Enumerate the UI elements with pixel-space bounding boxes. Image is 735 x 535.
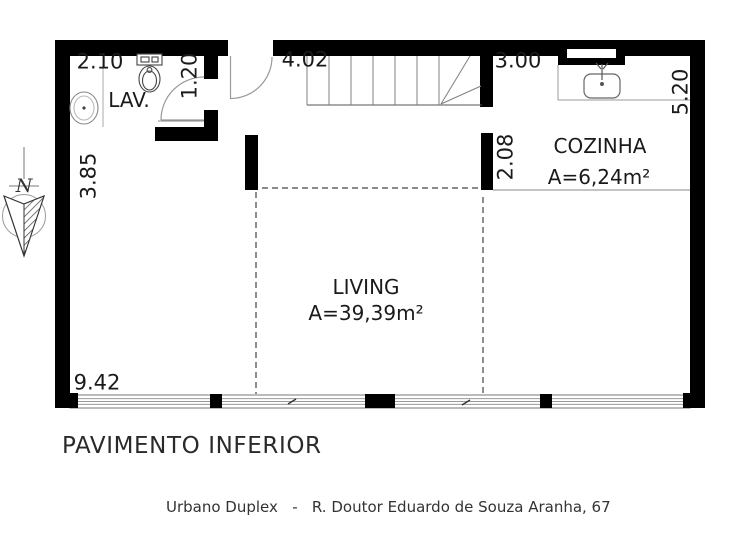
window-mullion (210, 394, 222, 408)
wall-left (55, 40, 70, 408)
entry-door-arc (231, 57, 273, 99)
lav-partition-wall (204, 56, 218, 79)
stair-winder (441, 56, 470, 104)
dim-entry: 4.02 (282, 50, 329, 71)
window-mullion (540, 394, 552, 408)
toilet-icon (137, 54, 162, 92)
bottom-window-wall (55, 393, 705, 408)
dim-cozinha-opening: 2.08 (496, 134, 517, 181)
room-label-living: LIVING (332, 277, 399, 297)
dim-wall-left: 3.85 (79, 153, 100, 200)
kitchen-sink-icon (584, 63, 620, 98)
interior-walls (155, 56, 493, 190)
plan-title: PAVIMENTO INFERIOR (62, 433, 322, 459)
entry-door (231, 56, 273, 99)
kitchen-window-slot (567, 49, 616, 58)
kitchen-wall-upper (480, 56, 493, 107)
north-arrow-icon: N (3, 147, 46, 256)
staircase (307, 56, 482, 105)
floor-plan-page: N 2.10 1.20 4.02 3.00 5.20 3.85 2.08 9.4… (0, 0, 735, 535)
pillar-living-left (245, 135, 258, 190)
lav-bottom-wall (155, 127, 218, 141)
bottom-corner-right (683, 393, 705, 408)
dim-living-width: 9.42 (74, 373, 121, 394)
washbasin-icon (70, 92, 98, 124)
dim-cozinha-depth: 5.20 (671, 69, 692, 116)
kitchen-wall-lower (481, 133, 493, 190)
room-label-lav: LAV. (108, 90, 149, 110)
bottom-corner-left (55, 393, 78, 408)
dim-cozinha-width: 3.00 (495, 51, 542, 72)
dim-lav-door: 1.20 (180, 53, 201, 100)
dim-lav-width: 2.10 (77, 52, 124, 73)
room-area-living: A=39,39m² (308, 303, 423, 323)
outer-walls (55, 40, 705, 408)
window-mullion (365, 394, 395, 408)
plan-caption: Urbano Duplex - R. Doutor Eduardo de Sou… (166, 498, 611, 516)
room-label-cozinha: COZINHA (554, 136, 647, 156)
room-area-cozinha: A=6,24m² (548, 167, 650, 187)
north-label: N (15, 175, 34, 197)
